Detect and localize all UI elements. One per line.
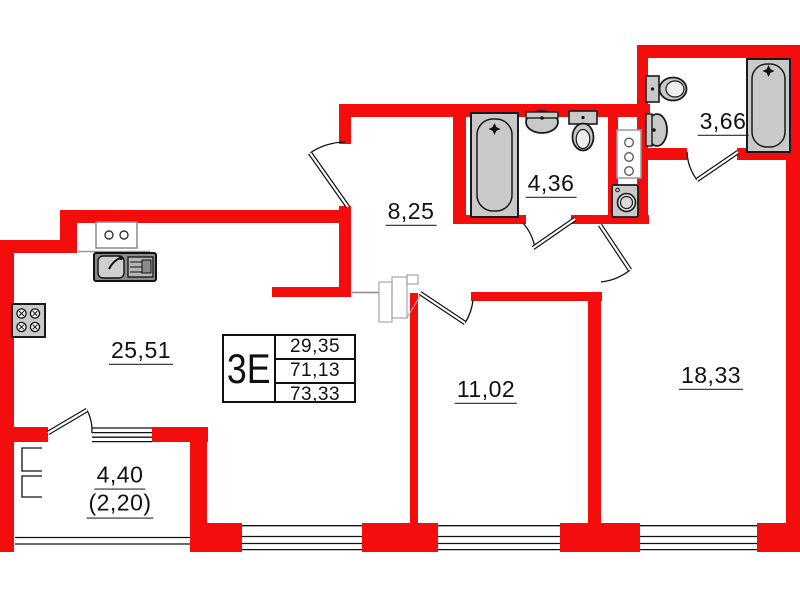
floor-plan: 25,51 8,25 4,36 3,66 11,02 18,33 4,40 (2… bbox=[0, 0, 800, 600]
entrance-door bbox=[310, 142, 348, 207]
room-label-balcony: 4,40 (2,20) bbox=[86, 462, 153, 519]
wall bbox=[410, 293, 418, 525]
window bbox=[242, 526, 362, 550]
room-label-bedroom-2: 18,33 bbox=[679, 362, 743, 390]
wall bbox=[453, 104, 466, 224]
room-label-hallway: 8,25 bbox=[386, 198, 437, 226]
total-area-value: 73,33 bbox=[276, 384, 354, 406]
wall bbox=[588, 292, 601, 525]
wall bbox=[152, 427, 208, 442]
wall bbox=[637, 45, 800, 58]
electric-panel bbox=[96, 222, 137, 248]
balcony-window bbox=[92, 428, 152, 442]
area-value: 71,13 bbox=[276, 358, 354, 384]
room-label-bathroom: 4,36 bbox=[526, 170, 577, 198]
room-label-bedroom-1: 11,02 bbox=[455, 376, 517, 404]
wall bbox=[10, 427, 48, 442]
wash-basin-fixture bbox=[646, 114, 667, 146]
stove-fixture bbox=[12, 304, 45, 337]
bathtub-fixture bbox=[747, 59, 790, 152]
wall-pier bbox=[362, 523, 438, 552]
wc-door bbox=[687, 152, 738, 180]
bathtub-fixture bbox=[471, 113, 518, 217]
wall bbox=[471, 292, 602, 301]
toilet-fixture bbox=[646, 76, 687, 102]
balcony-door bbox=[48, 410, 92, 433]
window bbox=[438, 526, 560, 550]
wall bbox=[62, 210, 350, 223]
balcony-glazing bbox=[15, 538, 190, 545]
wall bbox=[608, 104, 618, 224]
living-area-value: 29,35 bbox=[276, 336, 354, 358]
bedroom2-door bbox=[600, 225, 630, 282]
apartment-info-box: 3Е 29,35 71,13 73,33 bbox=[222, 334, 356, 403]
wall bbox=[190, 442, 207, 525]
wall bbox=[637, 45, 648, 224]
wall bbox=[272, 287, 350, 297]
wall bbox=[339, 206, 351, 297]
drain-icon bbox=[489, 123, 501, 135]
window bbox=[640, 526, 757, 550]
bathroom-door bbox=[523, 219, 575, 248]
kitchen-sink-fixture bbox=[94, 253, 156, 281]
room-label-wc: 3,66 bbox=[698, 108, 749, 136]
wall bbox=[453, 215, 526, 224]
apartment-areas: 29,35 71,13 73,33 bbox=[276, 336, 354, 401]
drain-icon bbox=[763, 65, 775, 77]
wall-pier bbox=[757, 523, 800, 552]
room-label-kitchen-living: 25,51 bbox=[109, 337, 173, 365]
wall bbox=[786, 45, 800, 552]
wall bbox=[648, 148, 687, 160]
bedroom1-door bbox=[420, 293, 473, 323]
apartment-type-code: 3Е bbox=[224, 336, 276, 401]
wall bbox=[0, 240, 77, 253]
wall-pier bbox=[190, 523, 242, 552]
wall bbox=[339, 104, 650, 117]
wall-pier bbox=[560, 523, 640, 552]
wall bbox=[0, 240, 14, 552]
wall bbox=[737, 148, 790, 160]
balcony-furniture bbox=[22, 448, 42, 497]
